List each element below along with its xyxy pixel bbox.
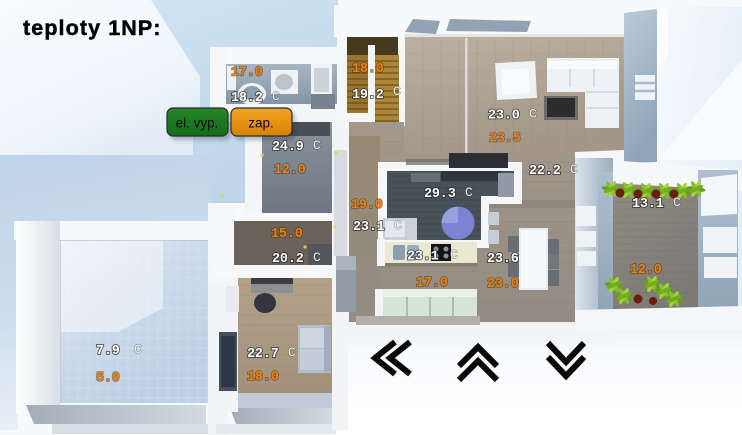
- svg-text:23.0: 23.0: [488, 109, 520, 124]
- svg-text:teploty 1NP:: teploty 1NP:: [23, 16, 162, 40]
- svg-text:13.1: 13.1: [632, 197, 664, 212]
- svg-text:zap.: zap.: [248, 116, 274, 131]
- svg-text:C: C: [393, 84, 401, 99]
- svg-text:7.9: 7.9: [96, 344, 120, 359]
- svg-text:23.0: 23.0: [487, 277, 519, 292]
- svg-text:12.0: 12.0: [630, 263, 662, 278]
- svg-text:C: C: [465, 185, 473, 200]
- svg-text:19.0: 19.0: [351, 198, 383, 213]
- svg-text:C: C: [134, 342, 142, 357]
- svg-text:C: C: [394, 218, 402, 233]
- svg-text:C: C: [450, 248, 458, 263]
- svg-text:17.0: 17.0: [416, 276, 448, 291]
- svg-text:C: C: [288, 345, 296, 360]
- svg-text:18.0: 18.0: [352, 62, 384, 77]
- svg-text:22.7: 22.7: [247, 347, 279, 362]
- svg-text:el. vyp.: el. vyp.: [176, 116, 219, 131]
- svg-text:C: C: [529, 107, 537, 122]
- svg-text:15.0: 15.0: [271, 227, 303, 242]
- svg-text:C: C: [673, 195, 681, 210]
- svg-text:22.2: 22.2: [529, 164, 561, 179]
- svg-text:18.2: 18.2: [231, 91, 263, 106]
- svg-text:C: C: [313, 250, 321, 265]
- svg-text:18.0: 18.0: [247, 370, 279, 385]
- svg-text:23.5: 23.5: [489, 132, 521, 147]
- svg-text:C: C: [272, 89, 280, 104]
- svg-text:5.0: 5.0: [96, 371, 120, 386]
- svg-text:C: C: [313, 138, 321, 153]
- svg-text:12.0: 12.0: [274, 163, 306, 178]
- svg-text:17.0: 17.0: [231, 66, 263, 81]
- svg-text:20.2: 20.2: [272, 252, 304, 267]
- svg-text:19.2: 19.2: [352, 88, 384, 103]
- svg-text:23.1: 23.1: [407, 250, 439, 265]
- svg-text:C: C: [570, 162, 578, 177]
- svg-text:23.6: 23.6: [487, 252, 519, 267]
- svg-text:24.9: 24.9: [272, 140, 304, 155]
- svg-text:29.3: 29.3: [424, 187, 456, 202]
- svg-text:23.1: 23.1: [353, 220, 385, 235]
